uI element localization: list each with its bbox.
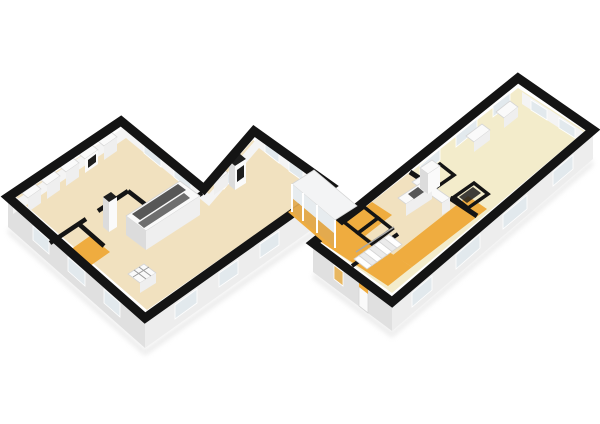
pillar-front [109, 197, 117, 232]
right-wing [313, 78, 593, 338]
floorplan-canvas[interactable] [0, 0, 600, 424]
pillar-side [103, 197, 109, 232]
floorplan-viewport [0, 0, 600, 424]
left-wing [8, 121, 331, 356]
